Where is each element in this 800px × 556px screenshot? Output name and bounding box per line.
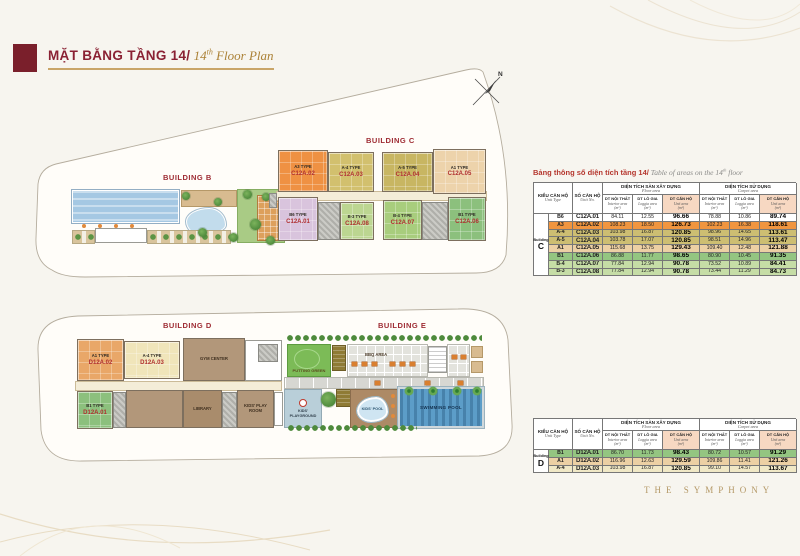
table-cell: 13.75 (633, 245, 663, 253)
building-d-units-block (126, 390, 183, 428)
header-unit-area: DT CĂN HỘUnit area(m²) (760, 195, 797, 214)
table-cell: 14.57 (730, 466, 760, 474)
building-e-label: BUILDING E (378, 321, 426, 330)
building-b-label: BUILDING B (163, 173, 212, 182)
header-loggia: DT LÔ GIALoggia area(m²) (730, 431, 760, 450)
table-cell: C12A.05 (573, 245, 603, 253)
table-cell: A-5 (549, 237, 573, 245)
table-cell: C12A.01 (573, 214, 603, 222)
tree (182, 192, 190, 200)
table-cell: 73.44 (700, 269, 730, 277)
table-cell: 84.11 (603, 214, 633, 222)
page-title-vietnamese: MẶT BẰNG TẦNG 14/ (48, 48, 190, 63)
page-title: MẶT BẰNG TẦNG 14/ 14th Floor Plan (48, 47, 274, 70)
table-caption: Bảng thông số diện tích tầng 14/ Table o… (533, 162, 743, 180)
pool-lounger (391, 394, 395, 398)
table-cell: C12A.02 (573, 222, 603, 230)
bbq-table (352, 362, 357, 366)
bbq-table (410, 362, 415, 366)
unit-c12a-02: A3 TYPEC12A.02 (278, 150, 328, 192)
planter-box (471, 346, 483, 358)
header-floor-area: DIỆN TÍCH SÀN XÂY DỰNGFloor area (603, 183, 700, 195)
header-loggia: DT LÔ GIALoggia area(m²) (633, 195, 663, 214)
building-d-core (222, 392, 237, 428)
table-header: KIỂU CĂN HỘUnit Type SỐ CĂN HỘUnit No. D… (534, 419, 796, 450)
walkway-table (458, 381, 463, 385)
table-row: A1D12A.02116.9612.63129.59109.8611.41121… (549, 458, 797, 466)
pool-lounger (391, 404, 395, 408)
kids-play-room: KIDS' PLAY ROOM (237, 390, 274, 428)
unit-c12a-05: A1 TYPEC12A.05 (433, 149, 486, 194)
table-cell: 98.43 (663, 450, 700, 458)
tree (266, 236, 275, 245)
table-cell: 126.73 (663, 222, 700, 230)
planter-row (72, 230, 95, 244)
table-row: B1D12A.0186.7011.7398.4380.7210.5791.29 (549, 450, 797, 458)
table-cell: 10.45 (730, 253, 760, 261)
building-c-label: BUILDING C (366, 136, 415, 145)
table-cell: 77.84 (603, 261, 633, 269)
table-row: B-3C12A.0877.8412.9490.7873.4411.2984.73 (549, 269, 797, 277)
table-cell: 98.65 (663, 253, 700, 261)
building-c-cell: BuildingC (534, 214, 549, 276)
table-cell: 98.96 (700, 230, 730, 238)
tree (243, 190, 252, 199)
table-cell: 113.67 (760, 466, 797, 474)
unit-c12a-01: B6 TYPEC12A.01 (278, 197, 318, 241)
table-cell: 78.88 (700, 214, 730, 222)
table-cell: C12A.03 (573, 230, 603, 238)
kids-pool: KIDS' POOL (357, 397, 388, 422)
table-cell: 18.50 (633, 222, 663, 230)
table-cell: 99.10 (700, 466, 730, 474)
table-cell: D12A.03 (573, 466, 603, 474)
header-interior: DT NỘI THẤTInterior area(m²) (603, 431, 633, 450)
table-cell: C12A.06 (573, 253, 603, 261)
tree (198, 228, 207, 237)
table-cell: C12A.08 (573, 269, 603, 277)
table-row: A3C12A.02108.2318.50126.73102.2316.38118… (549, 222, 797, 230)
table-cell: 16.38 (730, 222, 760, 230)
header-unit-area: DT CĂN HỘUnit area(m²) (760, 431, 797, 450)
bbq-table (452, 355, 457, 359)
table-cell: 129.43 (663, 245, 700, 253)
table-cell: 91.29 (760, 450, 797, 458)
table-header: KIỂU CĂN HỘUnit Type SỐ CĂN HỘUnit No. D… (534, 183, 796, 214)
table-rows-d: B1D12A.0186.7011.7398.4380.7210.5791.29A… (549, 450, 797, 473)
the-symphony-logo: THE SYMPHONY (644, 485, 774, 495)
title-accent-block (13, 44, 37, 72)
pool-lounger (391, 414, 395, 418)
table-cell: 86.88 (603, 253, 633, 261)
table-cell: B1 (549, 253, 573, 261)
areas-table-building-d: KIỂU CĂN HỘUnit Type SỐ CĂN HỘUnit No. D… (533, 418, 796, 473)
table-cell: 80.90 (700, 253, 730, 261)
table-cell: A-4 (549, 466, 573, 474)
table-cell: B-3 (549, 269, 573, 277)
header-interior: DT NỘI THẤTInterior area(m²) (700, 431, 730, 450)
building-d-end-room (274, 392, 283, 426)
unit-c12a-04: A-5 TYPEC12A.04 (382, 152, 433, 192)
table-cell: 96.66 (663, 214, 700, 222)
table-cell: 86.70 (603, 450, 633, 458)
table-cell: 90.78 (663, 269, 700, 277)
library-room: LIBRARY (183, 390, 222, 428)
bbq-table (362, 362, 367, 366)
building-c-stair (269, 193, 277, 208)
palm-tree (404, 386, 414, 396)
header-floor-area: DIỆN TÍCH SÀN XÂY DỰNGFloor area (603, 419, 700, 431)
table-rows-c: B6C12A.0184.1112.5596.6678.8810.8689.74A… (549, 214, 797, 276)
header-unit-type: KIỂU CĂN HỘUnit Type (534, 183, 573, 214)
unit-d12a-02: A1 TYPED12A.02 (77, 339, 124, 381)
compass-north-label: N (498, 71, 503, 78)
table-cell: D12A.01 (573, 450, 603, 458)
table-row: B-4C12A.0777.8412.9490.7873.5210.8984.41 (549, 261, 797, 269)
table-cell: B1 (549, 450, 573, 458)
table-cell: 121.26 (760, 458, 797, 466)
bbq-table (390, 362, 395, 366)
tree (214, 198, 222, 206)
table-cell: 118.61 (760, 222, 797, 230)
table-cell: 102.23 (700, 222, 730, 230)
table-cell: 103.98 (603, 230, 633, 238)
table-cell: 108.23 (603, 222, 633, 230)
table-row: A-4C12A.03103.9816.87120.8598.9614.65113… (549, 230, 797, 238)
tree (321, 392, 336, 407)
unit-c12a-08: B-3 TYPEC12A.08 (340, 202, 374, 240)
table-cell: A3 (549, 222, 573, 230)
areas-table-building-c: KIỂU CĂN HỘUnit Type SỐ CĂN HỘUnit No. D… (533, 182, 796, 276)
walkway-table (425, 381, 430, 385)
table-cell: 120.85 (663, 466, 700, 474)
palm-tree (472, 386, 482, 396)
table-cell: 12.55 (633, 214, 663, 222)
table-cell: 12.63 (633, 458, 663, 466)
hedge-row-top (286, 334, 482, 342)
table-row: A1C12A.05115.6813.75129.43109.4012.48121… (549, 245, 797, 253)
unit-c12a-06: B1 TYPEC12A.06 (448, 197, 486, 241)
table-cell: 10.89 (730, 261, 760, 269)
table-cell: 121.88 (760, 245, 797, 253)
table-cell: 17.07 (633, 237, 663, 245)
table-cell: 14.65 (730, 230, 760, 238)
header-unit-area: DT CĂN HỘUnit area(m²) (663, 195, 700, 214)
table-cell: 10.57 (730, 450, 760, 458)
tree (229, 233, 238, 242)
planter-row (147, 230, 231, 244)
hedge-block (336, 389, 351, 407)
palm-tree (428, 386, 438, 396)
table-cell: 16.87 (633, 230, 663, 238)
table-cell: 98.51 (700, 237, 730, 245)
table-row: A-4D12A.03103.9816.87120.8599.1014.57113… (549, 466, 797, 474)
header-carpet-area: DIỆN TÍCH SỬ DỤNGCarpet area (700, 419, 797, 431)
table-cell: C12A.07 (573, 261, 603, 269)
table-cell: 89.74 (760, 214, 797, 222)
header-unit-area: DT CĂN HỘUnit area(m²) (663, 431, 700, 450)
unit-c12a-03: A-4 TYPEC12A.03 (328, 152, 374, 192)
unit-d12a-03: A-4 TYPED12A.03 (124, 341, 180, 379)
table-cell: C12A.04 (573, 237, 603, 245)
putting-green: PUTTING GREEN (287, 344, 331, 377)
table-cell: 115.68 (603, 245, 633, 253)
table-cell: A1 (549, 245, 573, 253)
table-cell: 91.35 (760, 253, 797, 261)
unit-d12a-01: B1 TYPED12A.01 (77, 391, 113, 429)
table-cell: 84.41 (760, 261, 797, 269)
hedge-block (332, 345, 346, 371)
building-c-core (318, 202, 340, 240)
table-cell: 113.47 (760, 237, 797, 245)
kids-playground: KIDS' PLAYGROUND (284, 389, 322, 428)
table-cell: 12.94 (633, 261, 663, 269)
table-cell: 11.73 (633, 450, 663, 458)
table-cell: 11.41 (730, 458, 760, 466)
table-cell: 109.40 (700, 245, 730, 253)
table-cell: A1 (549, 458, 573, 466)
header-unit-no: SỐ CĂN HỘUnit No. (573, 183, 603, 214)
building-d-cell: BuildingD (534, 450, 549, 473)
table-cell: 16.87 (633, 466, 663, 474)
header-interior: DT NỘI THẤTInterior area(m²) (700, 195, 730, 214)
table-cell: 103.78 (603, 237, 633, 245)
walkway-table (375, 381, 380, 385)
hedge-row-bottom (287, 424, 417, 432)
table-cell: 12.48 (730, 245, 760, 253)
table-cell: 80.72 (700, 450, 730, 458)
table-cell: 109.86 (700, 458, 730, 466)
building-b-structure (95, 228, 147, 243)
table-cell: 120.85 (663, 237, 700, 245)
building-d-core (113, 392, 126, 428)
table-cell: 129.59 (663, 458, 700, 466)
table-cell: 10.86 (730, 214, 760, 222)
bbq-table (400, 362, 405, 366)
table-cell: 116.96 (603, 458, 633, 466)
planter-box (471, 361, 483, 373)
stair-room (428, 346, 447, 373)
table-cell: 120.85 (663, 230, 700, 238)
table-cell: B-4 (549, 261, 573, 269)
table-cell: 84.73 (760, 269, 797, 277)
header-carpet-area: DIỆN TÍCH SỬ DỤNGCarpet area (700, 183, 797, 195)
palm-tree (452, 386, 462, 396)
table-row: B1C12A.0686.8811.7798.6580.9010.4591.35 (549, 253, 797, 261)
table-cell: 14.96 (730, 237, 760, 245)
table-cell: 12.94 (633, 269, 663, 277)
header-interior: DT NỘI THẤTInterior area(m²) (603, 195, 633, 214)
bbq-area-label: BBQ AREA (365, 352, 387, 357)
building-d-label: BUILDING D (163, 321, 212, 330)
header-loggia: DT LÔ GIALoggia area(m²) (633, 431, 663, 450)
header-loggia: DT LÔ GIALoggia area(m²) (730, 195, 760, 214)
table-cell: 113.61 (760, 230, 797, 238)
floor-plan-page: N MẶT BẰNG TẦNG 14/ 14th Floor Plan BUIL… (0, 0, 800, 556)
bbq-table (461, 355, 466, 359)
unit-c12a-07: B-4 TYPEC12A.07 (383, 200, 422, 240)
building-c-core (422, 202, 448, 240)
table-row: A-5C12A.04103.7817.07120.8598.5114.96113… (549, 237, 797, 245)
table-cell: 103.98 (603, 466, 633, 474)
pool-lounger (82, 224, 86, 228)
bbq-table (372, 362, 377, 366)
tree (250, 219, 261, 230)
seating-paving (447, 344, 470, 377)
header-unit-type: KIỂU CĂN HỘUnit Type (534, 419, 573, 450)
table-cell: 77.84 (603, 269, 633, 277)
table-cell: 11.29 (730, 269, 760, 277)
table-cell: A-4 (549, 230, 573, 238)
table-cell: 90.78 (663, 261, 700, 269)
table-cell: 73.52 (700, 261, 730, 269)
header-unit-no: SỐ CĂN HỘUnit No. (573, 419, 603, 450)
table-row: B6C12A.0184.1112.5596.6678.8810.8689.74 (549, 214, 797, 222)
building-b-main-pool (72, 190, 179, 223)
building-d-core (258, 344, 278, 362)
table-cell: B6 (549, 214, 573, 222)
page-title-english: 14th Floor Plan (190, 48, 273, 63)
playground-icon (299, 399, 307, 407)
bbq-area (347, 344, 428, 377)
building-b-pergola-deck (181, 190, 237, 207)
table-cell: D12A.02 (573, 458, 603, 466)
gym-center-room: GYM CENTER (183, 338, 245, 381)
table-cell: 11.77 (633, 253, 663, 261)
